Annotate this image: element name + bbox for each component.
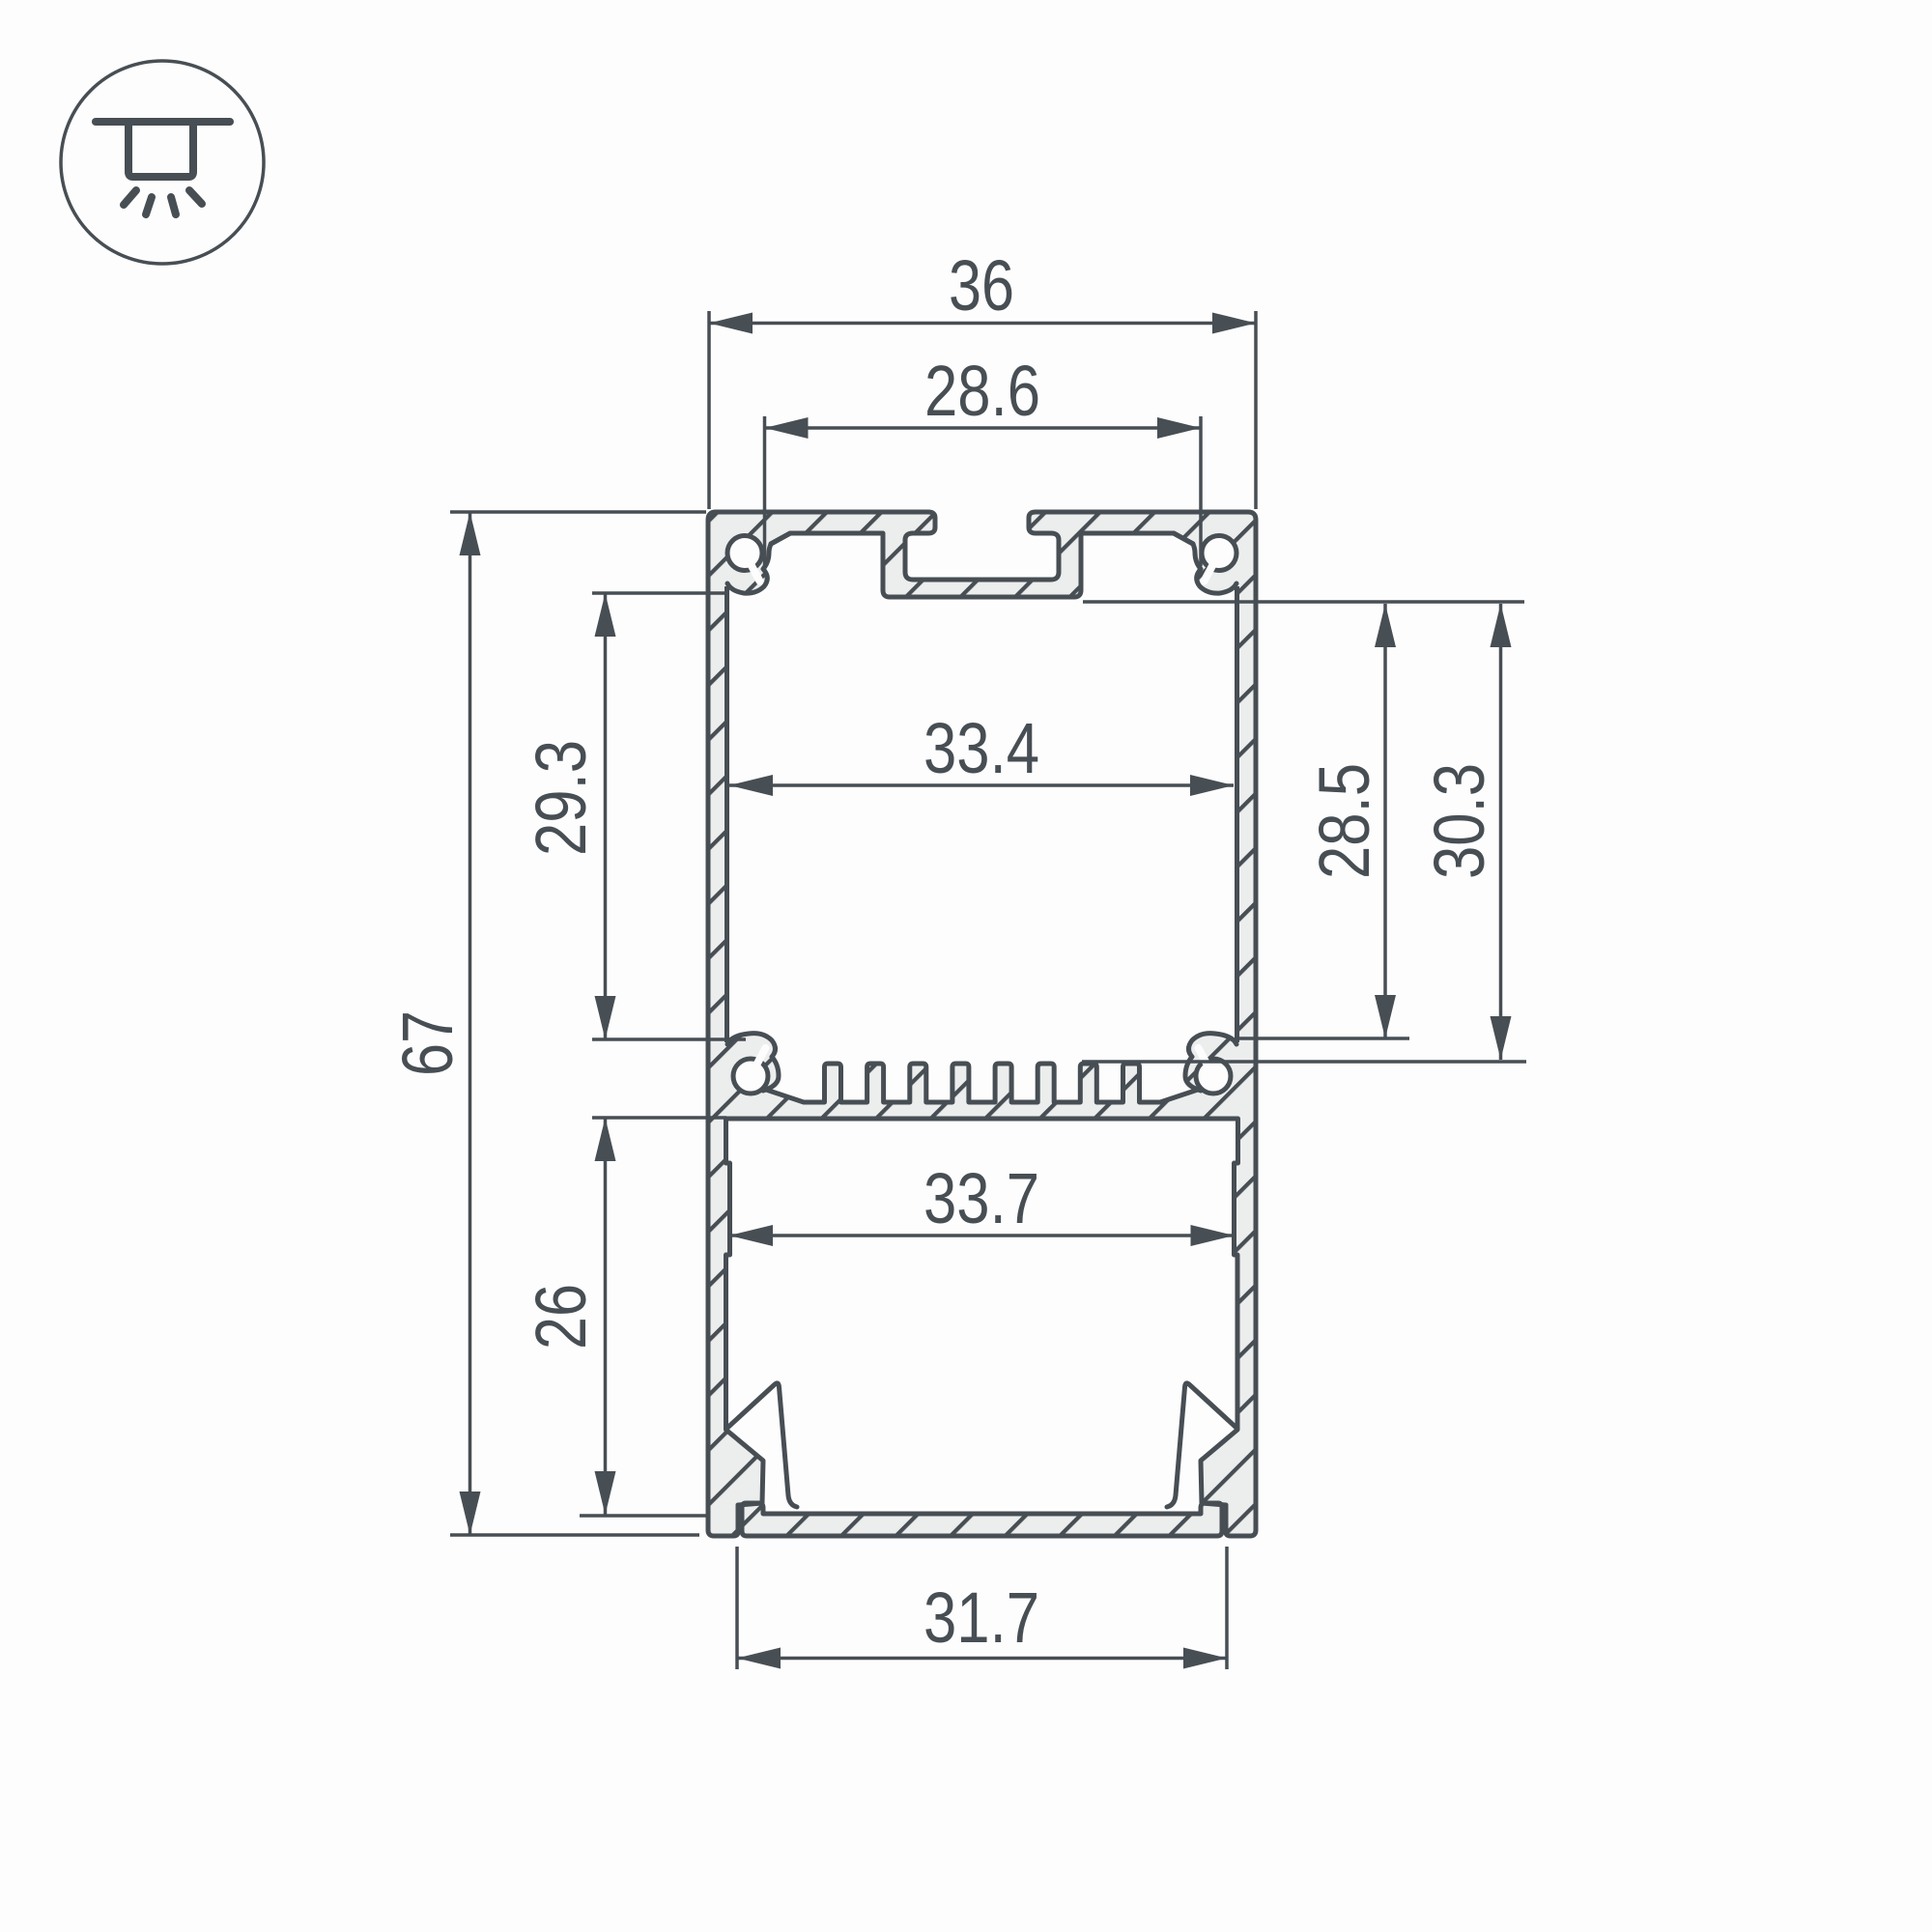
svg-text:30.3: 30.3 xyxy=(1419,763,1499,879)
svg-text:29.3: 29.3 xyxy=(521,740,601,856)
svg-text:26: 26 xyxy=(521,1284,601,1350)
svg-text:67: 67 xyxy=(387,1010,468,1076)
svg-text:28.5: 28.5 xyxy=(1304,763,1384,879)
svg-text:31.7: 31.7 xyxy=(923,1577,1039,1658)
svg-text:28.6: 28.6 xyxy=(924,351,1040,431)
svg-text:36: 36 xyxy=(949,245,1014,326)
svg-text:33.7: 33.7 xyxy=(923,1158,1039,1238)
svg-text:33.4: 33.4 xyxy=(923,708,1039,788)
